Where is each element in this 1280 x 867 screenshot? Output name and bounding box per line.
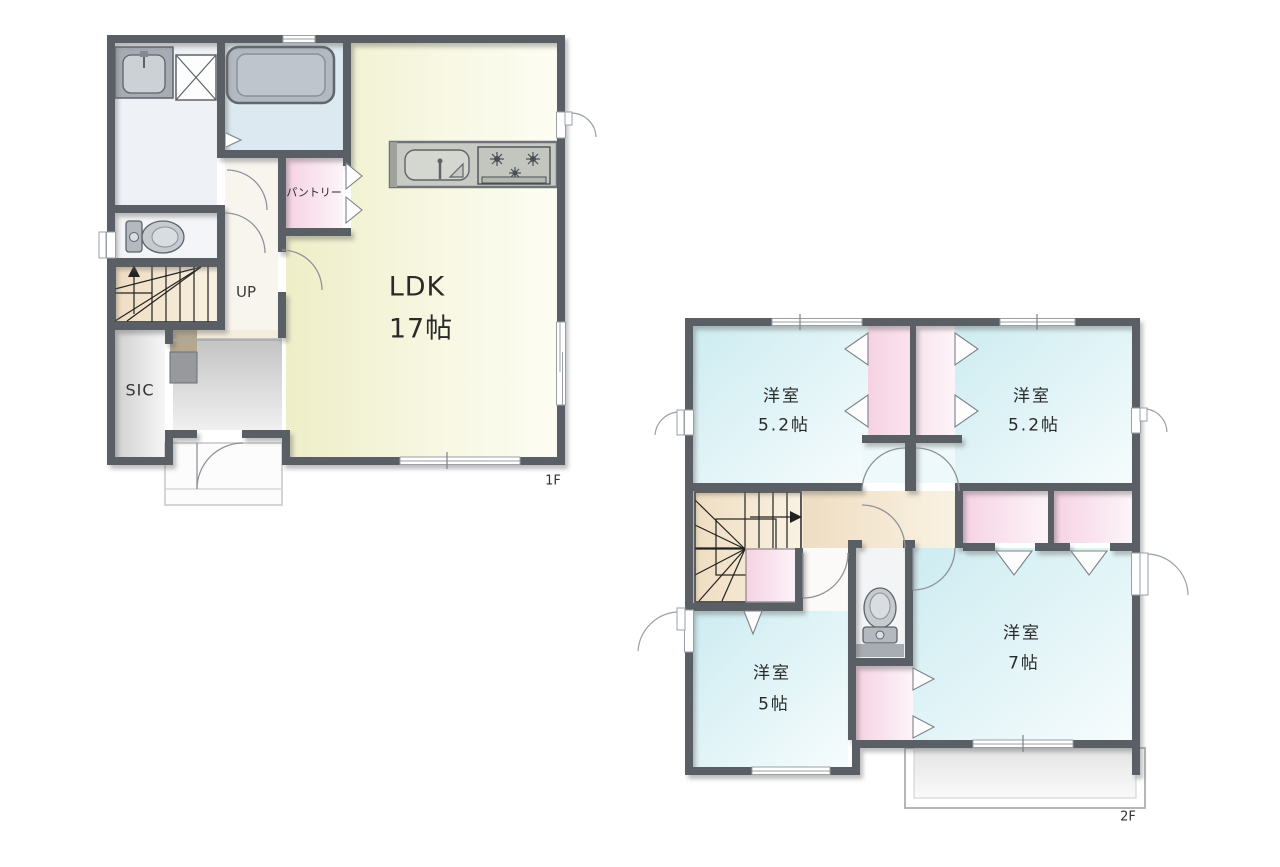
pantry-label: パントリー <box>286 184 342 200</box>
kitchen-counter <box>390 142 557 187</box>
window-5jo-bottom <box>752 767 830 775</box>
hallway-1f <box>225 158 278 338</box>
toilet-icon-1f <box>126 221 184 253</box>
closet-se-2 <box>1054 491 1132 543</box>
floor-plan-drawing <box>0 0 1280 867</box>
ldk-name-label: LDK <box>389 272 446 303</box>
room-entry-nook <box>803 548 848 611</box>
window-toilet-left <box>99 232 116 258</box>
washbasin-icon <box>115 47 173 98</box>
kitchen-sink-icon <box>405 150 469 180</box>
casement-window-2f-right-large <box>1132 553 1189 595</box>
casement-window-2f-left-small <box>655 410 694 435</box>
bedroom-tl-name: 洋室 <box>763 382 801 407</box>
balcony <box>905 748 1145 808</box>
burner-1 <box>490 152 504 166</box>
stairs-1f <box>115 265 222 322</box>
bedroom-tr-size: 5.2帖 <box>1008 411 1060 436</box>
ldk-size-label: 17帖 <box>389 307 453 346</box>
entry-storage-block <box>170 330 197 383</box>
window-ldk-right <box>557 322 566 405</box>
bedroom-tl-size: 5.2帖 <box>758 411 810 436</box>
burner-2 <box>526 152 540 166</box>
stove-icon <box>478 147 550 184</box>
floor2-label: 2F <box>1120 810 1136 825</box>
bedroom-bottom-right <box>913 548 1132 740</box>
floor-plan-page: LDK 17帖 パントリー UP SIC 1F 洋室 5.2帖 洋室 5.2帖 … <box>0 0 1280 867</box>
kitchen-backdoor <box>557 112 597 138</box>
floor1-room-fills <box>115 43 557 457</box>
bedroom-tr-name: 洋室 <box>1013 382 1051 407</box>
bedroom-bl-size: 5帖 <box>758 690 790 715</box>
casement-window-2f-right-small <box>1132 408 1168 433</box>
sic-label: SIC <box>125 381 154 400</box>
bathtub-icon <box>227 47 334 103</box>
stairs-up-label: UP <box>236 283 256 301</box>
floor1-label: 1F <box>545 474 561 489</box>
bedroom-br-size: 7帖 <box>1008 649 1040 674</box>
washing-machine-icon <box>176 55 216 100</box>
porch <box>165 443 282 505</box>
bedroom-br-name: 洋室 <box>1003 619 1041 644</box>
casement-window-2f-left-large <box>638 608 694 652</box>
hallway-2f <box>803 491 955 548</box>
closet-west <box>856 666 913 740</box>
bedroom-bl-name: 洋室 <box>753 659 791 684</box>
closet-se-1 <box>963 491 1048 543</box>
closet-under-stairs <box>746 549 798 602</box>
bedroom-top-left-ext <box>862 443 906 483</box>
window-bath-top <box>283 36 315 43</box>
